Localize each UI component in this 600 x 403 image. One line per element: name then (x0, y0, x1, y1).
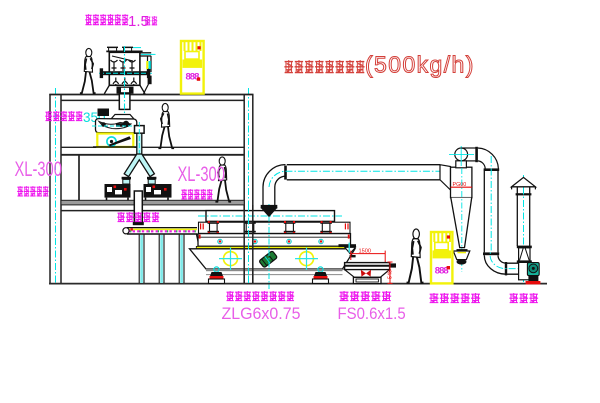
svg-text:888: 888 (186, 72, 200, 83)
svg-text:(500kg/h): (500kg/h) (365, 52, 475, 78)
svg-text:ZLG6x0.75: ZLG6x0.75 (222, 305, 301, 324)
svg-text:XL-300: XL-300 (178, 162, 225, 185)
svg-text:1.5: 1.5 (128, 13, 149, 30)
svg-text:XL-300: XL-300 (15, 157, 62, 180)
svg-text:888: 888 (435, 266, 449, 277)
svg-text:FS0.6x1.5: FS0.6x1.5 (338, 305, 406, 323)
